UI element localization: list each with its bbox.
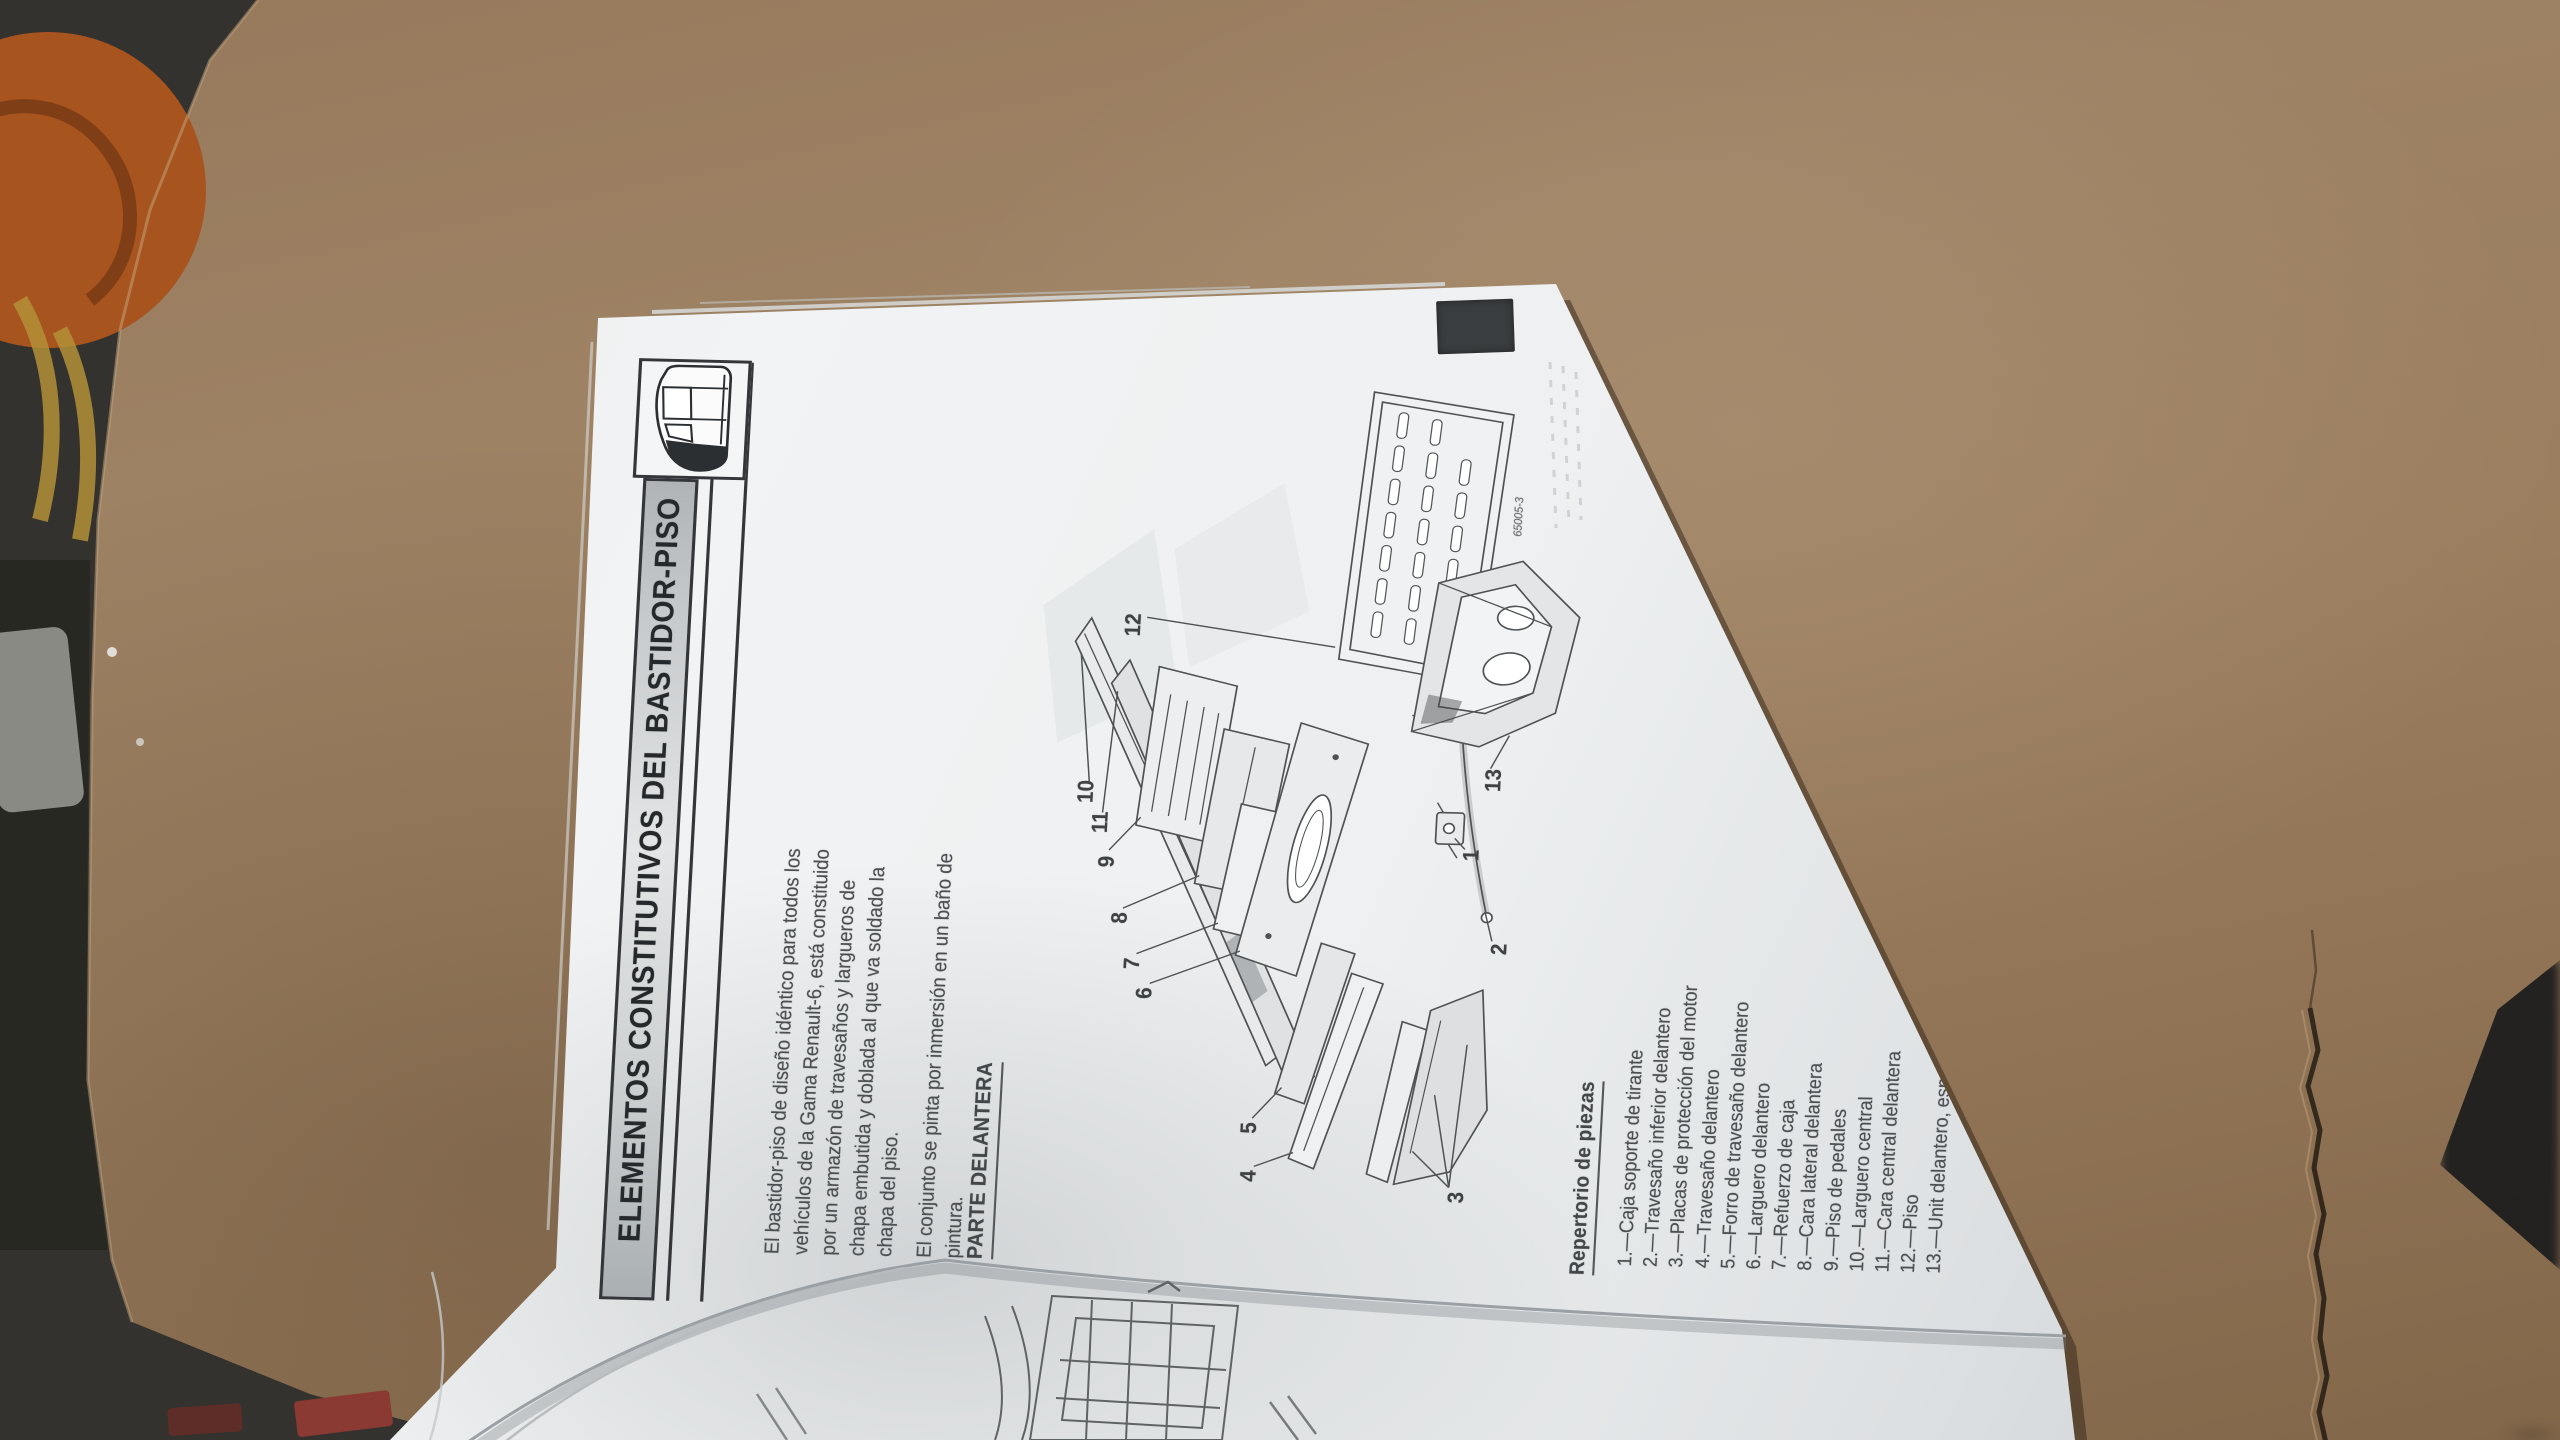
black-index-tab: [1436, 299, 1515, 355]
photo-scene: ELEMENTOS CONSTITUTIVOS DEL BASTIDOR-PIS…: [0, 0, 2560, 1440]
page-curl-overlay: [0, 0, 2560, 1440]
page-stack-edge-shadow: [475, 1268, 2066, 1440]
page-bottom-edge: [468, 1260, 2066, 1440]
page-curl-line: [505, 1268, 905, 1440]
ghost-text-marks: [1550, 362, 1581, 528]
page-edge-sliver: [652, 284, 1445, 312]
previous-page-illustration: [757, 1282, 1316, 1440]
page-curl-line: [430, 1272, 443, 1440]
page-edge-sliver: [548, 342, 592, 1230]
